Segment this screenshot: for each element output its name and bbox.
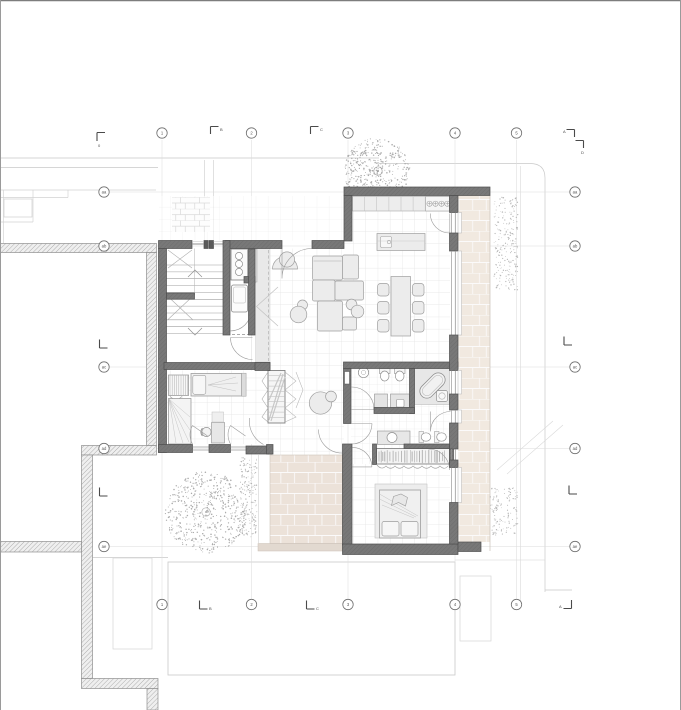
svg-text:A: A — [559, 604, 562, 609]
svg-text:C: C — [316, 606, 319, 611]
svg-text:D: D — [581, 150, 584, 155]
svg-text:ad: ad — [573, 446, 578, 451]
svg-text:B: B — [209, 606, 212, 611]
svg-text:aa: aa — [573, 190, 578, 195]
svg-text:B: B — [220, 127, 223, 132]
svg-text:ad: ad — [102, 446, 107, 451]
svg-text:ae: ae — [573, 544, 578, 549]
svg-text:ac: ac — [102, 365, 106, 370]
svg-text:0: 0 — [98, 143, 101, 148]
svg-text:ac: ac — [573, 365, 577, 370]
svg-text:A: A — [563, 129, 566, 134]
svg-text:aa: aa — [102, 190, 107, 195]
svg-text:ae: ae — [102, 544, 107, 549]
svg-text:C: C — [320, 127, 323, 132]
svg-text:ab: ab — [573, 244, 578, 249]
svg-text:ab: ab — [102, 244, 107, 249]
